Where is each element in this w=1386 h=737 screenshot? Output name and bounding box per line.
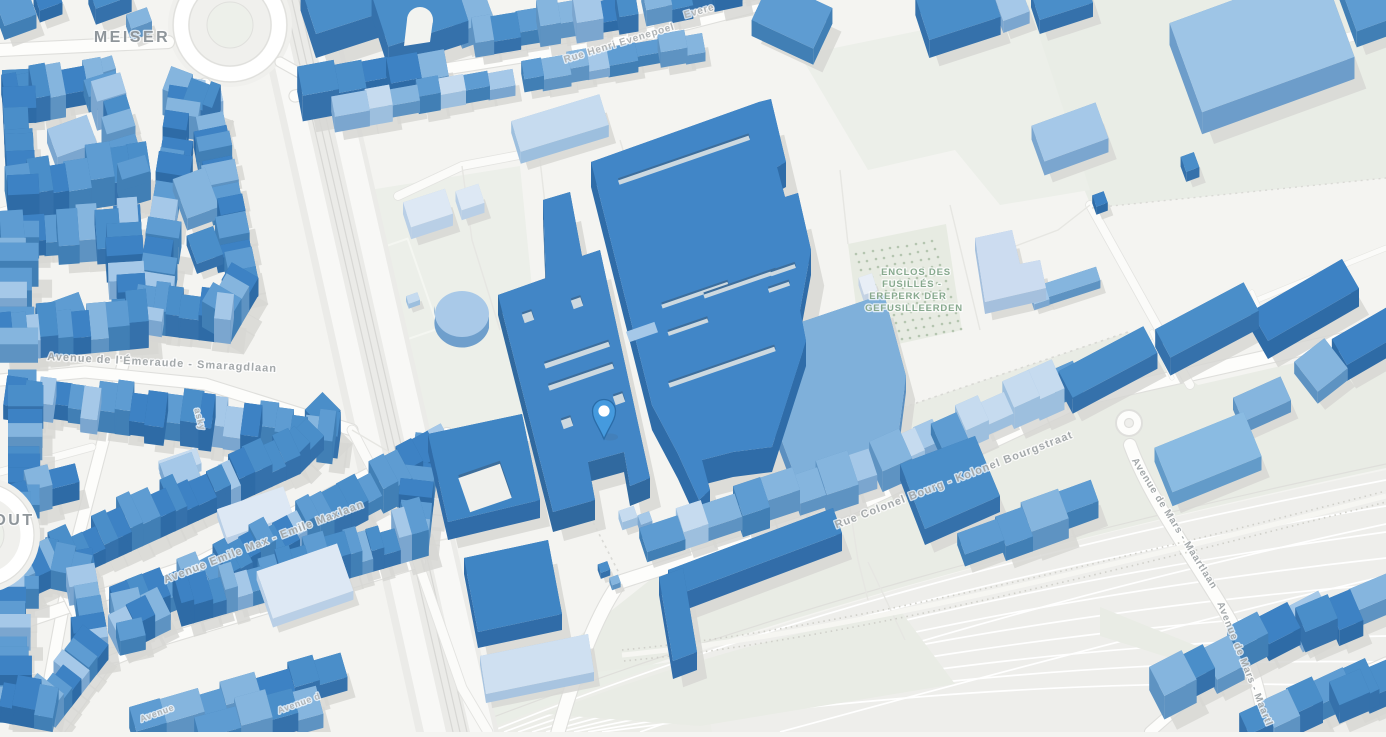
svg-text:ENCLOS DES: ENCLOS DES <box>881 267 951 278</box>
svg-text:OUT: OUT <box>0 512 35 529</box>
svg-text:FUSILLÉS -: FUSILLÉS - <box>882 279 942 290</box>
svg-text:EREPERK DER: EREPERK DER <box>869 291 946 302</box>
svg-text:GEFUSILLEERDEN: GEFUSILLEERDEN <box>865 303 963 314</box>
svg-text:MEISER: MEISER <box>94 29 170 46</box>
